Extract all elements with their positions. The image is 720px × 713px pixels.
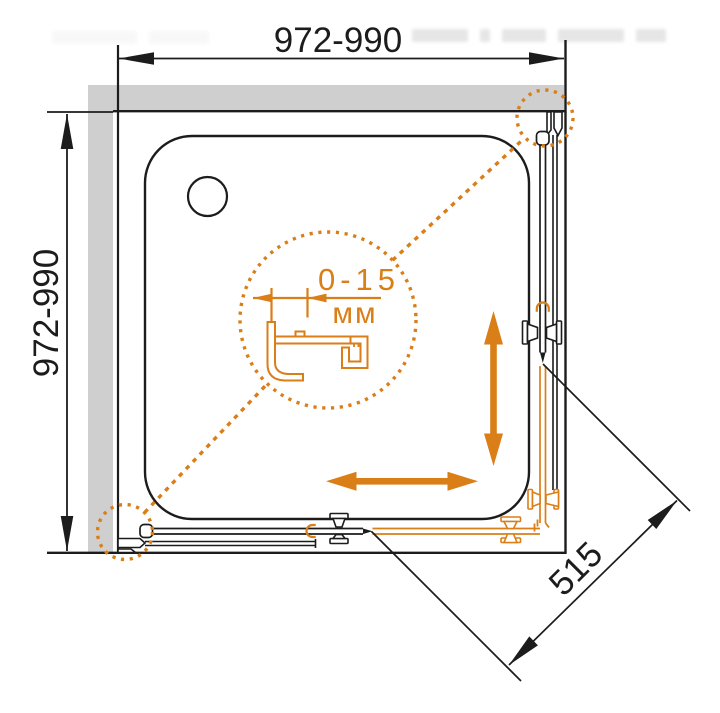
arrow-up-icon (61, 114, 74, 149)
sliding-door-open-position (373, 529, 541, 535)
wall-profile (554, 112, 562, 136)
shower-enclosure-drawing: 972-990 972-990 (0, 0, 720, 713)
dim-width-label: 972-990 (274, 21, 402, 60)
door-end-cap (140, 525, 153, 538)
top-wall (88, 85, 564, 110)
wall-profile (118, 549, 136, 553)
diagram-canvas: 972-990 972-990 (0, 0, 720, 713)
door-top-cap (537, 132, 550, 146)
door-glass (153, 529, 364, 535)
dim-door-label: 515 (541, 534, 610, 603)
dimension-left: 972-990 (27, 114, 73, 551)
corner-roller (501, 517, 521, 543)
arrow-left-icon (119, 52, 154, 65)
arrow-right-icon (529, 52, 564, 65)
dimension-top: 972-990 (119, 21, 564, 65)
fixed-glass (145, 539, 316, 548)
left-wall (88, 85, 113, 554)
arrow-down-icon (61, 516, 74, 551)
fixed-glass (553, 135, 557, 490)
corner-roller (528, 490, 559, 510)
door-roller (523, 321, 562, 344)
sliding-door-open-position (540, 366, 546, 523)
adjustment-unit-label: мм (332, 297, 377, 330)
dim-depth-label: 972-990 (27, 249, 66, 377)
door-handle-icon (307, 525, 316, 537)
door-handle-icon (537, 303, 549, 312)
wall-profile (118, 539, 145, 548)
adjustment-range-label: 0-15 (318, 262, 400, 297)
corner-profile (535, 520, 550, 532)
door-glass (540, 145, 546, 353)
